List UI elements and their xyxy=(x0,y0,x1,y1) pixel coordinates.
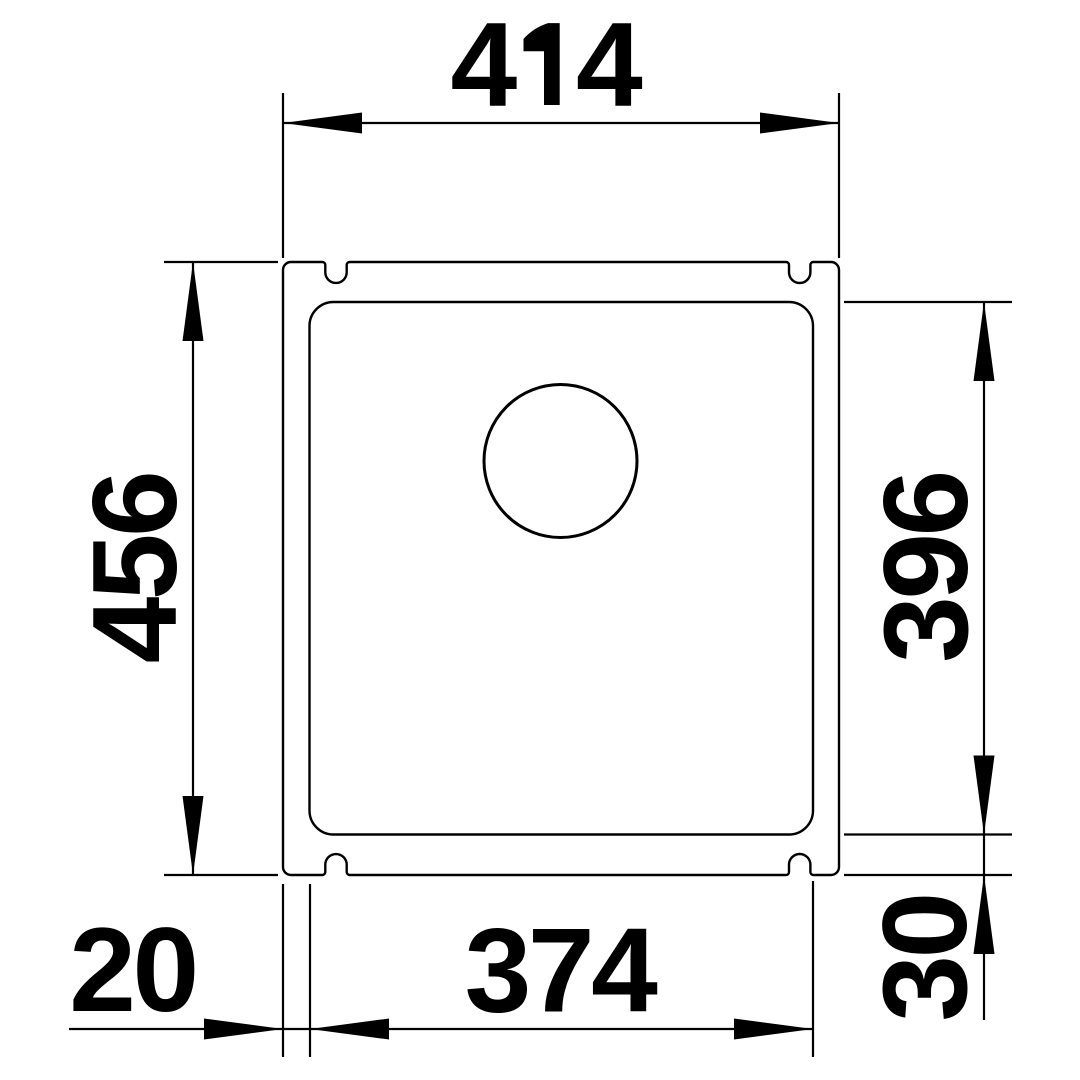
svg-text:374: 374 xyxy=(465,904,658,1038)
svg-text:30: 30 xyxy=(858,895,992,1021)
svg-text:4: 4 xyxy=(576,0,643,132)
svg-text:456: 456 xyxy=(68,474,202,664)
svg-text:396: 396 xyxy=(859,473,993,663)
svg-text:20: 20 xyxy=(69,903,195,1037)
svg-text:4: 4 xyxy=(451,0,518,132)
